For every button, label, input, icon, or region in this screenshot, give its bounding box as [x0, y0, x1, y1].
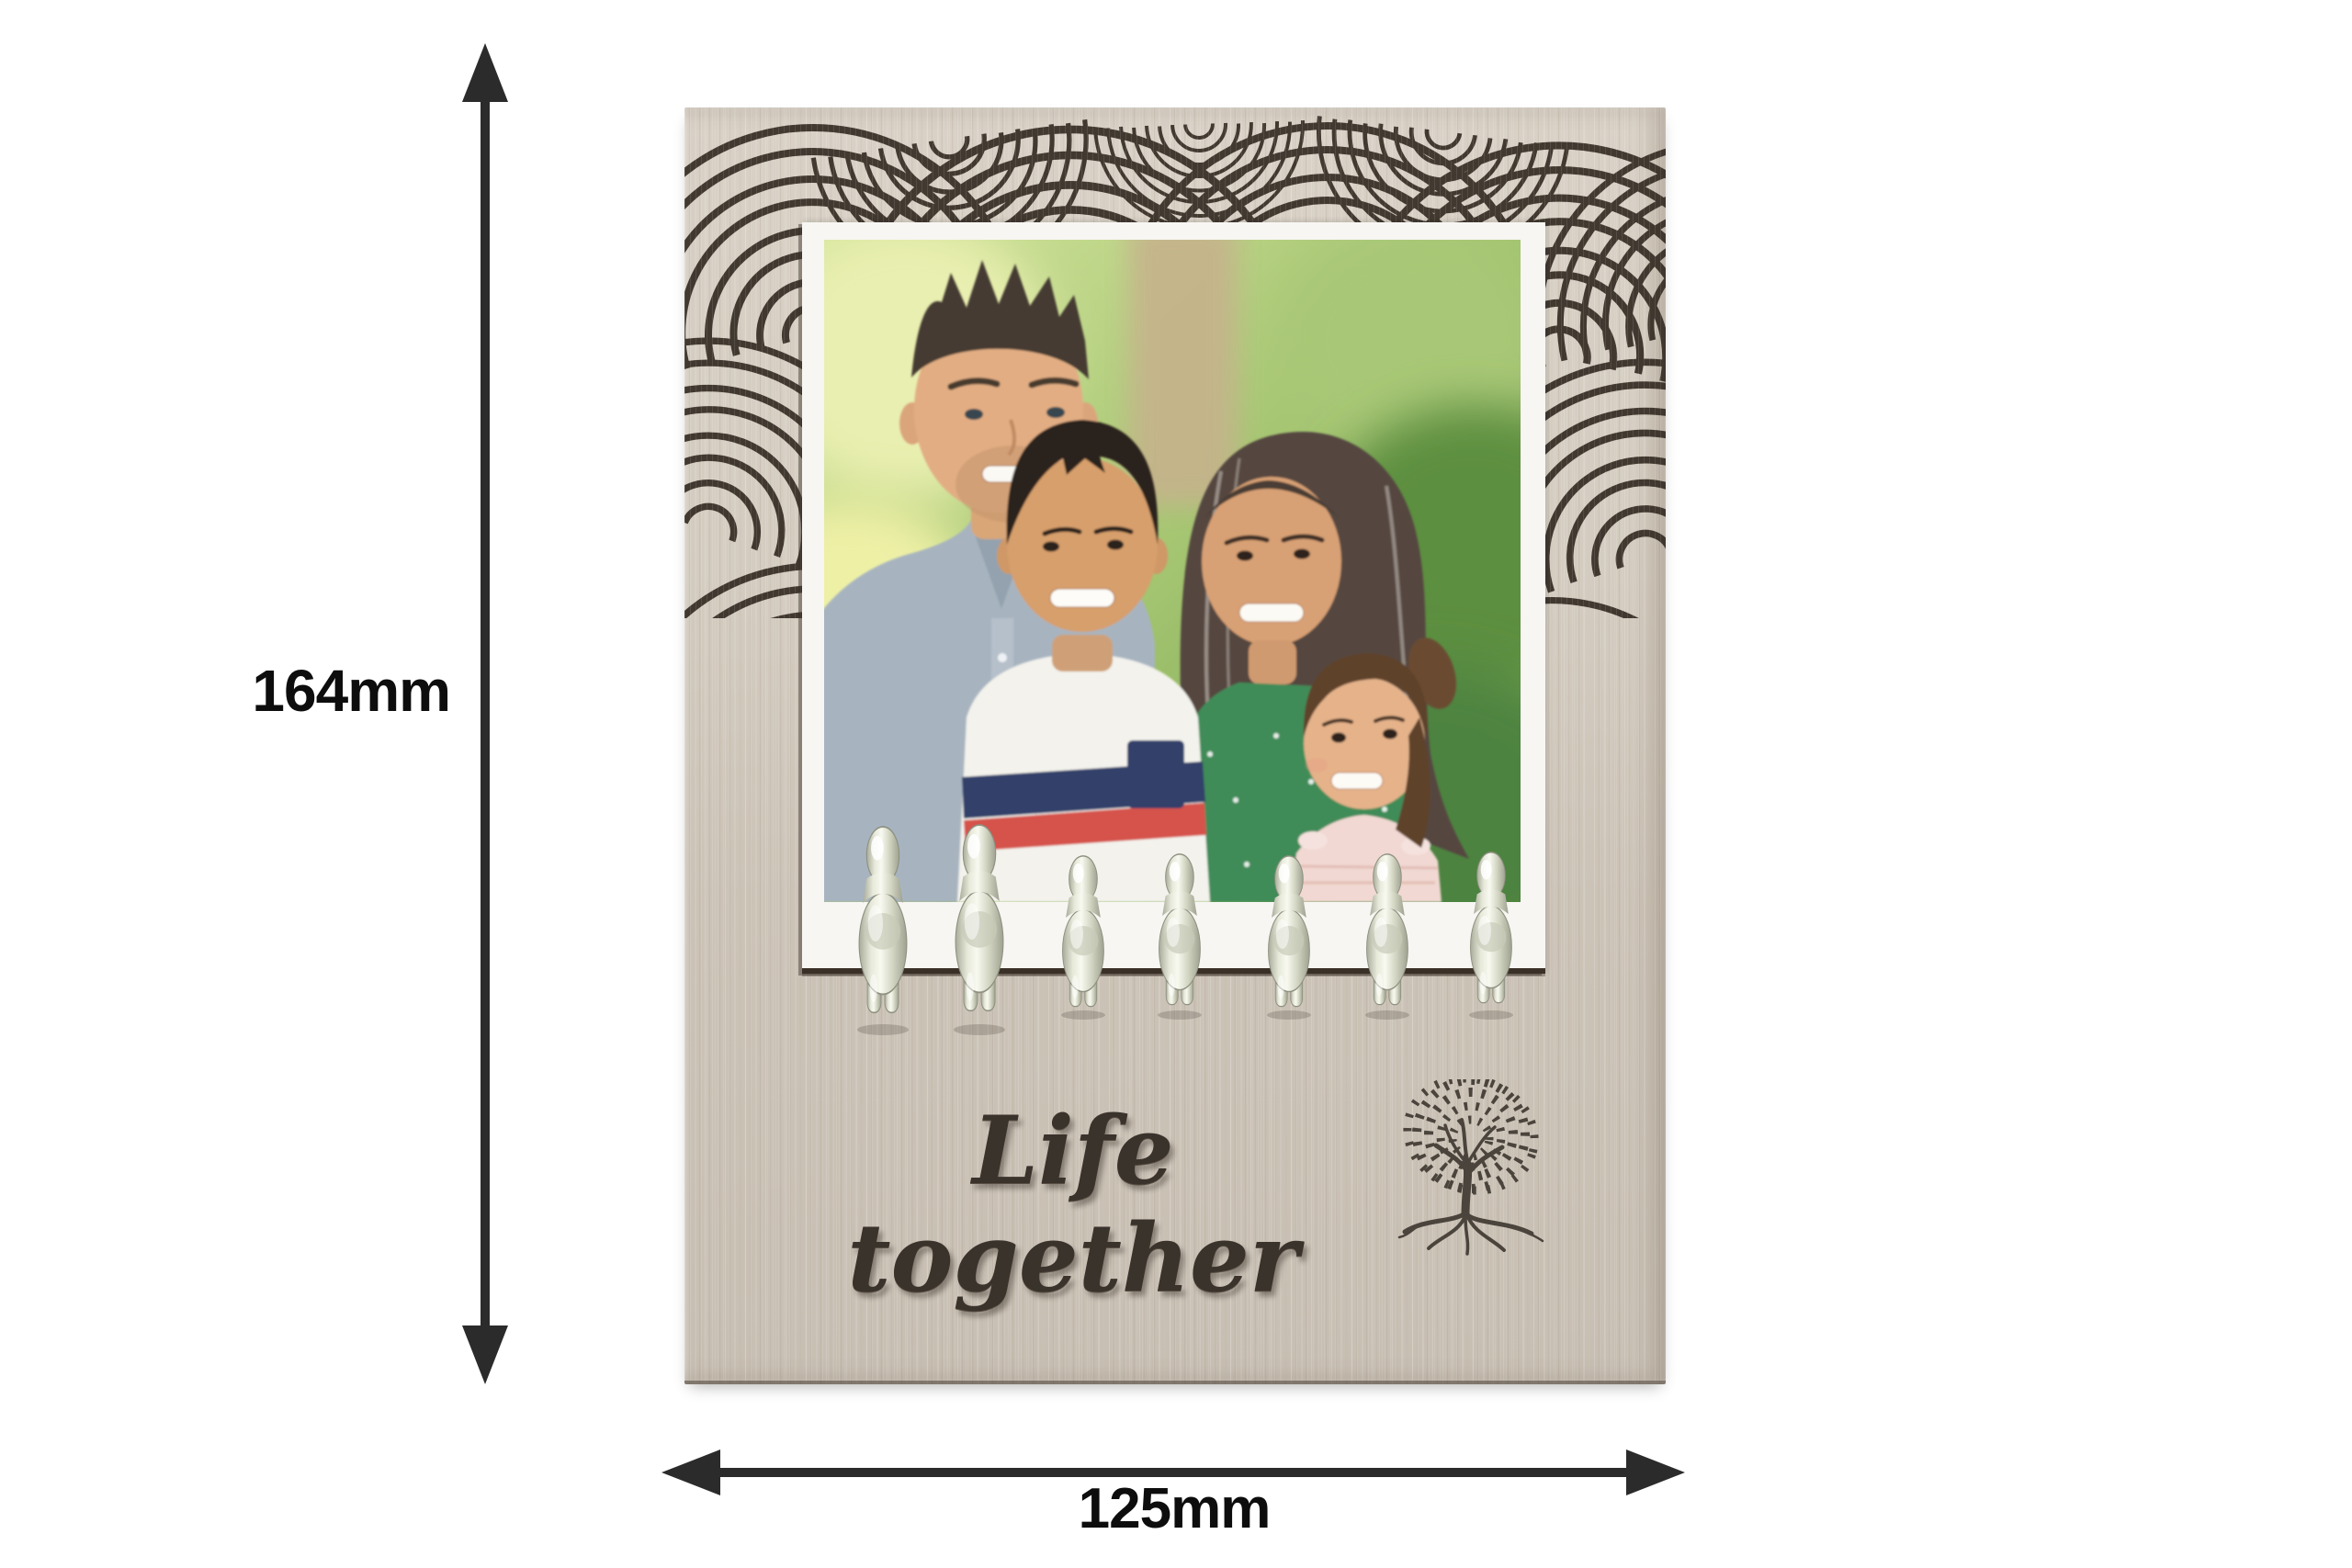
figurine-shadows	[857, 1010, 1513, 1035]
figurine-child-3	[1269, 856, 1310, 1007]
height-arrow-icon	[458, 41, 513, 1386]
figurine-child-1	[1063, 856, 1104, 1007]
figurine-adult-2	[955, 825, 1003, 1010]
height-dimension-label: 164mm	[216, 661, 450, 720]
family-photo	[824, 240, 1521, 902]
product-dimension-diagram: 164mm 125mm	[0, 0, 2352, 1568]
figurine-adult-1	[859, 827, 907, 1012]
engraving-text: Life together	[793, 1098, 1353, 1314]
figurine-child-4	[1367, 854, 1408, 1005]
figurine-child-2	[1159, 854, 1201, 1005]
photo-frame: Life together	[684, 107, 1666, 1384]
figurine-child-5	[1471, 852, 1512, 1003]
tree-of-life-icon	[1392, 1079, 1553, 1263]
photo-window	[824, 240, 1521, 902]
width-dimension-label: 125mm	[1036, 1481, 1312, 1538]
